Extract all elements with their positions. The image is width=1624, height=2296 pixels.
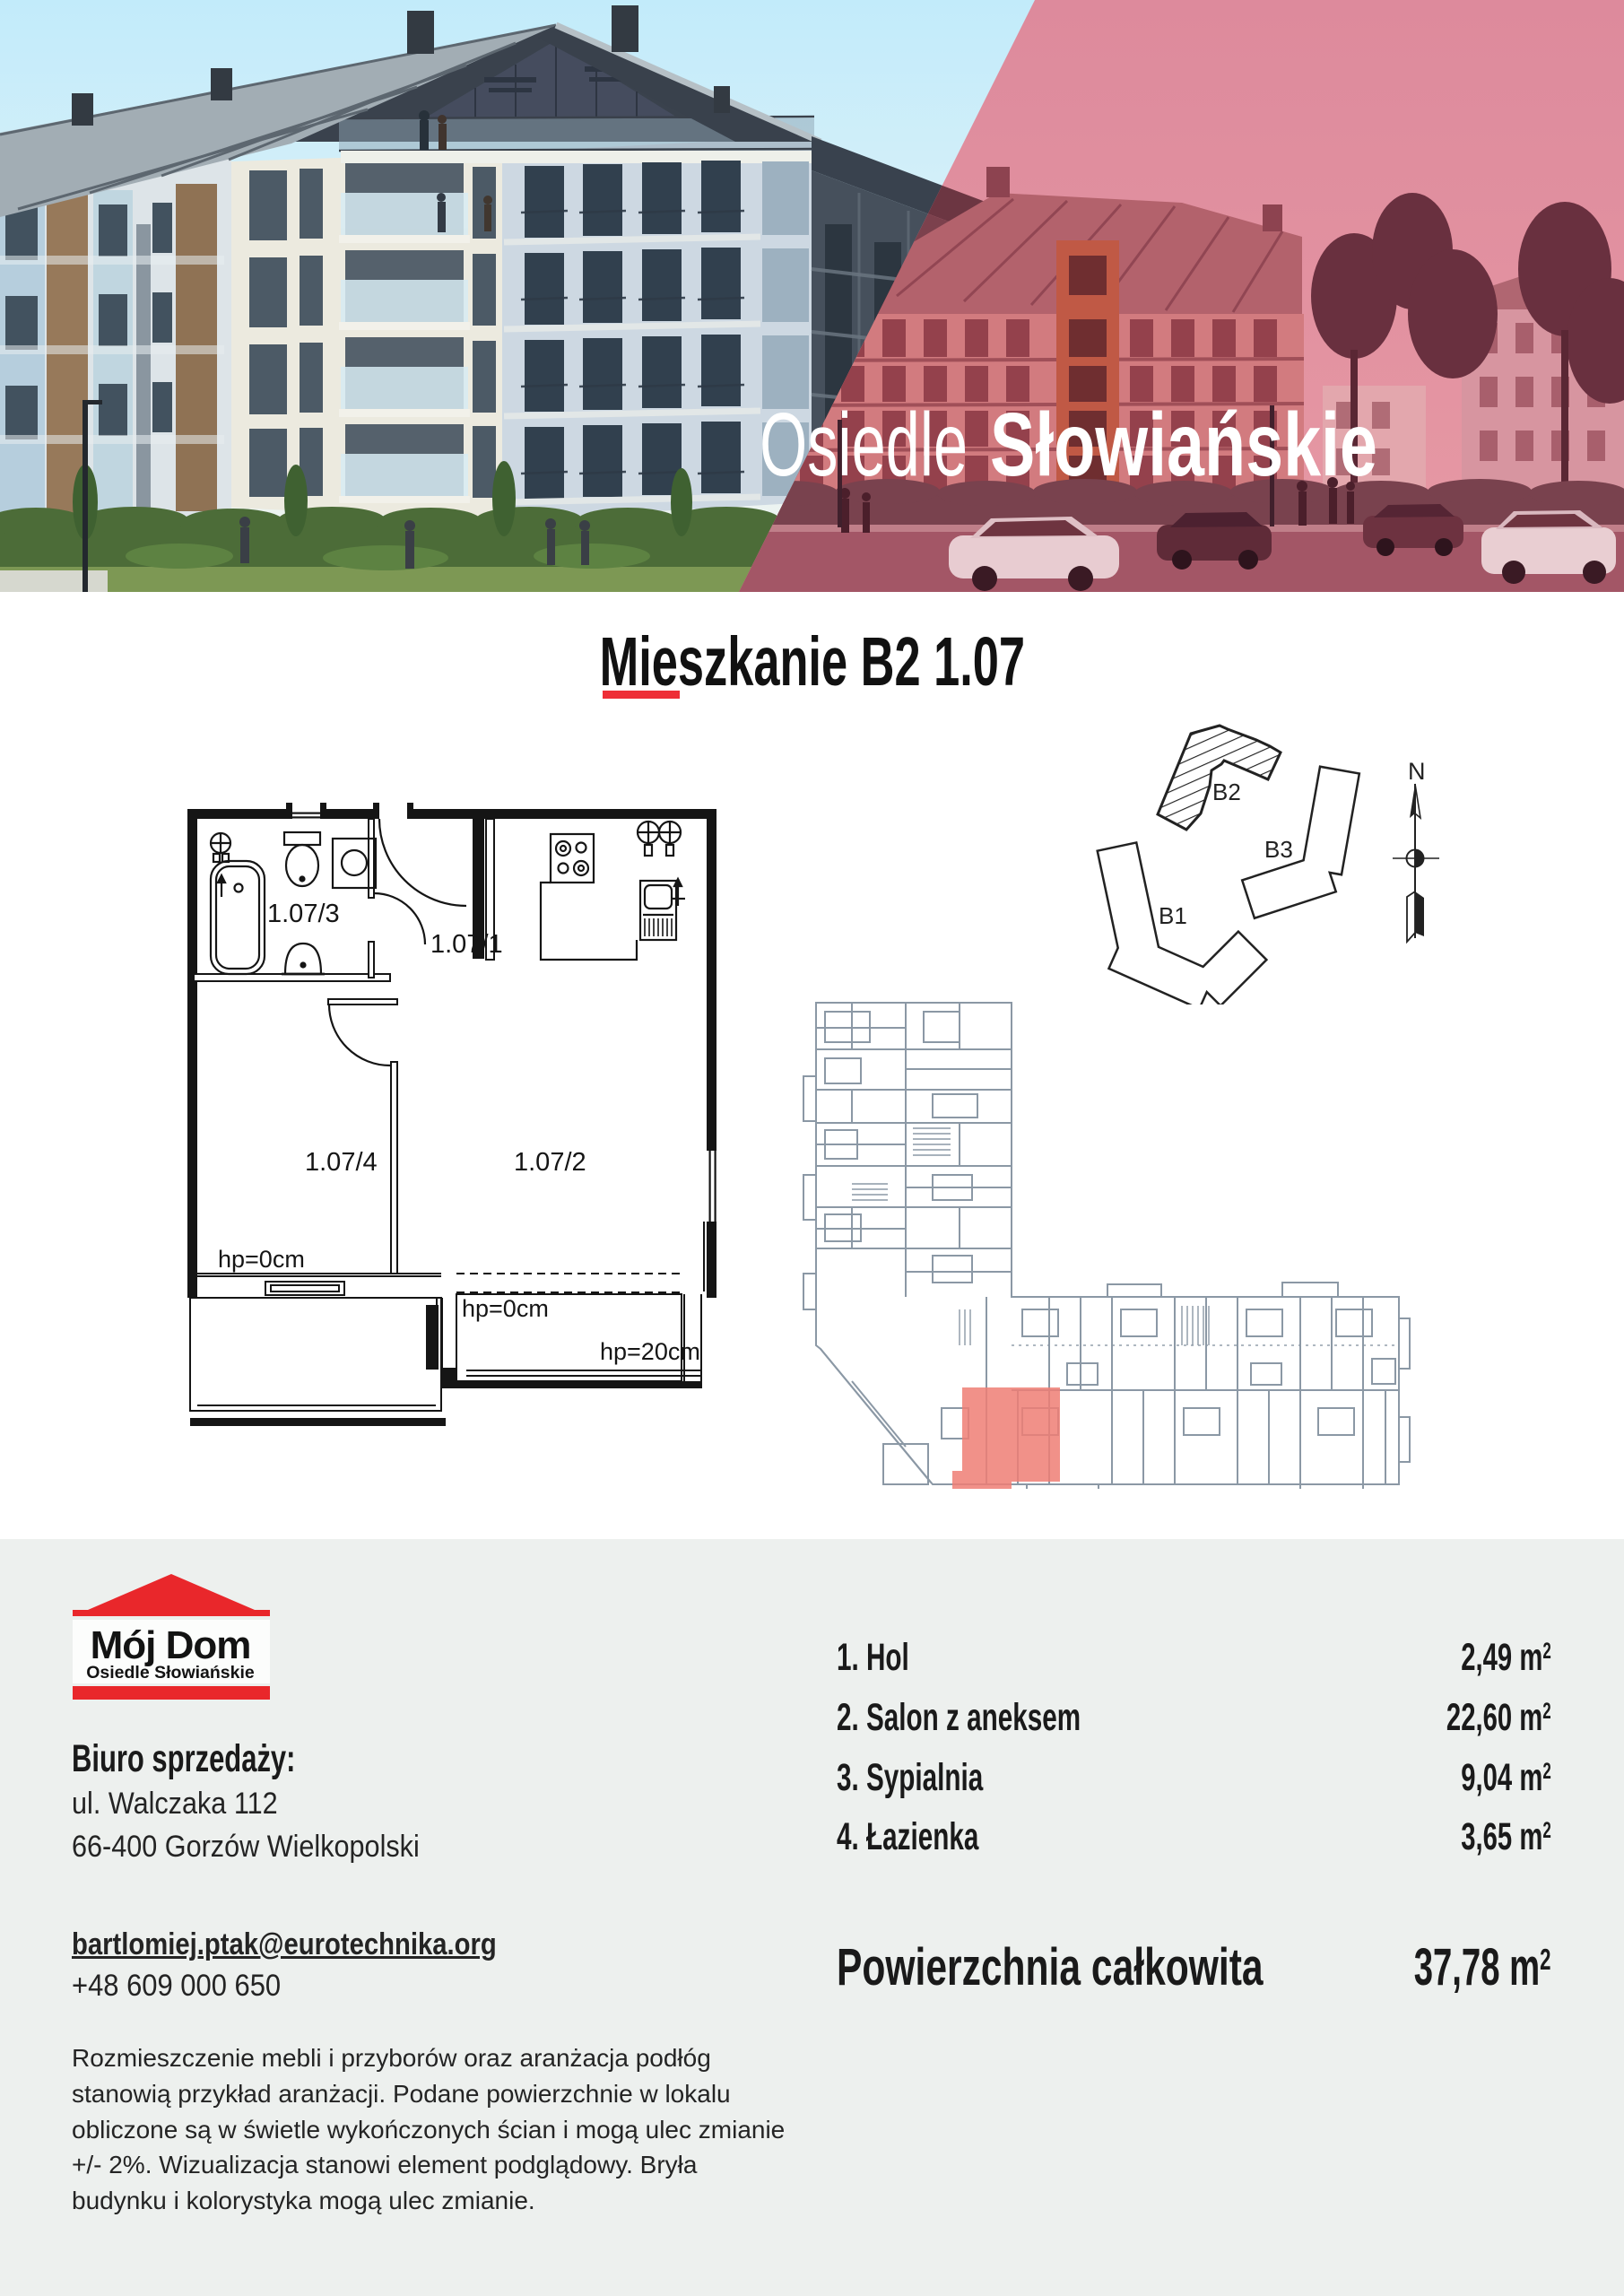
svg-text:1.07/2: 1.07/2: [514, 1148, 586, 1177]
svg-text:Osiedle: Osiedle: [760, 395, 968, 495]
svg-text:hp=20cm: hp=20cm: [600, 1338, 700, 1365]
svg-text:1.07/4: 1.07/4: [305, 1148, 378, 1177]
svg-text:B3: B3: [1264, 836, 1293, 863]
svg-text:Słowiańskie: Słowiańskie: [990, 395, 1377, 495]
svg-text:B1: B1: [1159, 902, 1187, 929]
svg-text:B2: B2: [1212, 778, 1241, 805]
svg-text:Osiedle Słowiańskie: Osiedle Słowiańskie: [86, 1663, 255, 1683]
svg-text:Mój Dom: Mój Dom: [91, 1623, 251, 1667]
svg-text:1.07/1: 1.07/1: [430, 930, 503, 959]
svg-text:N: N: [1408, 758, 1426, 785]
svg-text:hp=0cm: hp=0cm: [462, 1295, 549, 1322]
svg-text:1.07/3: 1.07/3: [267, 900, 340, 928]
svg-text:hp=0cm: hp=0cm: [218, 1246, 305, 1273]
